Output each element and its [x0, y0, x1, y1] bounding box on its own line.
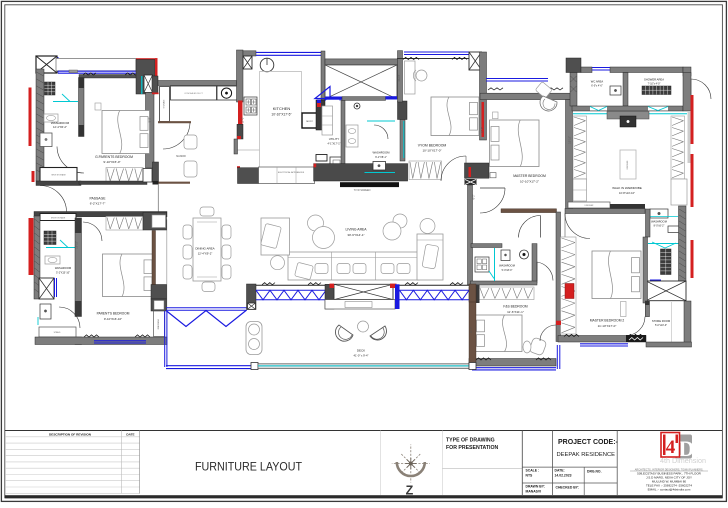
- svg-text:STAND: STAND: [54, 331, 61, 334]
- svg-text:9'-10"X15'-0": 9'-10"X15'-0": [103, 160, 120, 164]
- svg-text:17'-5": 17'-5": [242, 117, 245, 123]
- svg-text:PROJECT CODE:-: PROJECT CODE:-: [558, 439, 619, 446]
- svg-text:WC AREA: WC AREA: [591, 80, 604, 84]
- svg-text:MASTER BEDROOM 2: MASTER BEDROOM 2: [590, 319, 625, 323]
- svg-text:10'-10"X17'-2": 10'-10"X17'-2": [520, 180, 539, 184]
- svg-text:MANASVI: MANASVI: [526, 490, 542, 494]
- svg-text:10'-10"X17'-5": 10'-10"X17'-5": [271, 113, 291, 117]
- svg-text:6'-0"x 4'-0": 6'-0"x 4'-0": [591, 85, 603, 88]
- svg-text:9'-10"X16'-10": 9'-10"X16'-10": [104, 317, 122, 321]
- svg-text:EMAIL :- contact@4dsindia.com: EMAIL :- contact@4dsindia.com: [648, 487, 691, 491]
- svg-text:WASHROOM: WASHROOM: [499, 264, 515, 268]
- svg-text:4th Dimension: 4th Dimension: [660, 456, 706, 465]
- svg-text:DATE:: DATE:: [555, 469, 565, 473]
- svg-text:5'-0"x8'-0": 5'-0"x8'-0": [502, 269, 513, 272]
- svg-text:KITCHEN: KITCHEN: [273, 106, 291, 111]
- svg-text:TYPE OF DRAWING: TYPE OF DRAWING: [446, 438, 495, 444]
- svg-text:6'-2"X17'-7": 6'-2"X17'-7": [90, 202, 106, 206]
- svg-text:12'-4"X9'-2": 12'-4"X9'-2": [198, 252, 213, 256]
- svg-text:WASHROOM: WASHROOM: [651, 220, 667, 224]
- svg-text:DUCT: DUCT: [398, 74, 401, 81]
- svg-text:12'-4"X6'-2": 12'-4"X6'-2": [53, 125, 67, 129]
- svg-text:PARENT'S BEDROOM: PARENT'S BEDROOM: [97, 312, 130, 316]
- svg-text:UTILITY: UTILITY: [329, 137, 340, 141]
- svg-text:VYOM BEDROOM: VYOM BEDROOM: [418, 144, 447, 148]
- svg-text:DRESSER: DRESSER: [627, 160, 629, 169]
- svg-text:17'-0": 17'-0": [481, 127, 484, 133]
- svg-text:10'-8"x10'-10": 10'-8"x10'-10": [619, 191, 635, 195]
- svg-text:DRESSER: DRESSER: [585, 205, 594, 207]
- svg-text:10'-10"X17'-0": 10'-10"X17'-0": [423, 149, 442, 153]
- svg-text:PASSAGE: PASSAGE: [90, 197, 107, 201]
- svg-text:41'-0" x 9'-4": 41'-0" x 9'-4": [353, 354, 368, 358]
- svg-text:NTS: NTS: [526, 474, 534, 478]
- svg-text:4'-1"X17'-1": 4'-1"X17'-1": [327, 143, 340, 146]
- svg-text:CONCEALED DUCT: CONCEALED DUCT: [184, 92, 203, 95]
- svg-text:LIVING AREA: LIVING AREA: [345, 228, 367, 232]
- svg-text:CHECKED BY:: CHECKED BY:: [556, 486, 579, 490]
- svg-text:TV W SCREEN: TV W SCREEN: [354, 189, 371, 192]
- svg-text:DINING AREA: DINING AREA: [195, 247, 214, 251]
- svg-text:5'-2"X15'-10": 5'-2"X15'-10": [56, 271, 70, 274]
- svg-text:STORE ROOM: STORE ROOM: [652, 319, 671, 323]
- svg-text:11'-6"X11'-1": 11'-6"X11'-1": [507, 310, 524, 314]
- svg-text:DEEPAK RESIDENCE: DEEPAK RESIDENCE: [557, 452, 616, 458]
- svg-text:SHOE STORAGE: SHOE STORAGE: [51, 174, 66, 177]
- svg-text:SCALE :: SCALE :: [526, 469, 540, 473]
- svg-text:G.PARENTS BEDROOM: G.PARENTS BEDROOM: [95, 155, 133, 159]
- svg-text:6'-2": 6'-2": [473, 194, 476, 199]
- svg-text:WALK IN WARDROBE: WALK IN WARDROBE: [612, 186, 642, 190]
- svg-text:8'-0": 8'-0": [149, 117, 152, 122]
- svg-text:15'-10": 15'-10": [76, 241, 79, 249]
- svg-text:4: 4: [666, 437, 676, 458]
- svg-text:DRAWN BY:: DRAWN BY:: [526, 485, 545, 489]
- svg-text:6'-1"X8'-1": 6'-1"X8'-1": [375, 156, 387, 159]
- svg-text:7'-10"x 4'-0": 7'-10"x 4'-0": [648, 83, 661, 86]
- svg-text:30'-6"X14'-1": 30'-6"X14'-1": [347, 233, 364, 237]
- svg-text:PANTRY: PANTRY: [306, 120, 314, 123]
- svg-text:SHOWER AREA: SHOWER AREA: [644, 78, 664, 82]
- svg-text:DRG.NO.: DRG.NO.: [587, 470, 602, 474]
- svg-text:DATE: DATE: [126, 432, 134, 436]
- svg-text:SHOE STORAGE: SHOE STORAGE: [51, 216, 66, 219]
- svg-text:STORAGE: STORAGE: [163, 99, 166, 109]
- svg-text:DESCRIPTION OF REVISION: DESCRIPTION OF REVISION: [49, 432, 92, 436]
- svg-text:DECK: DECK: [357, 349, 365, 353]
- svg-text:FOR PRESENTATION: FOR PRESENTATION: [446, 445, 499, 451]
- svg-text:MASTER BEDROOM: MASTER BEDROOM: [513, 174, 546, 178]
- svg-text:5'-0"x10'-0": 5'-0"x10'-0": [655, 324, 667, 327]
- svg-text:F&S BEDROOM: F&S BEDROOM: [503, 305, 528, 309]
- svg-text:11'-1": 11'-1": [470, 327, 473, 333]
- svg-text:8'-0"x5'-2": 8'-0"x5'-2": [654, 225, 665, 228]
- svg-text:WASHROOM: WASHROOM: [55, 266, 72, 270]
- svg-text:MANDIR: MANDIR: [176, 155, 186, 158]
- svg-text:WASHROOM: WASHROOM: [51, 121, 70, 125]
- svg-text:FURNITURE LAYOUT: FURNITURE LAYOUT: [195, 459, 302, 473]
- svg-text:10'-10": 10'-10": [569, 136, 572, 144]
- svg-text:14.02.2023: 14.02.2023: [555, 474, 572, 478]
- svg-text:WASHROOM: WASHROOM: [373, 151, 391, 155]
- svg-text:ELECTRICAL APPLIANCES: ELECTRICAL APPLIANCES: [278, 171, 305, 174]
- svg-text:DRESSING: DRESSING: [158, 318, 160, 329]
- svg-text:11'-10"X17'-0": 11'-10"X17'-0": [598, 324, 617, 328]
